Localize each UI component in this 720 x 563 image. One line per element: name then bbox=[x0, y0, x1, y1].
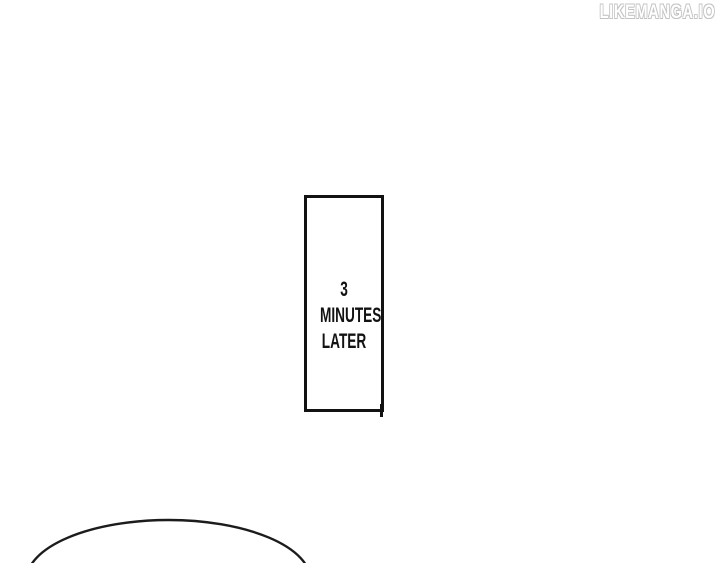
caption-line-3: LATER bbox=[320, 329, 368, 355]
caption-line-1: 3 bbox=[320, 277, 368, 303]
speech-bubble-arc bbox=[27, 520, 311, 563]
caption-line-2: MINUTES bbox=[320, 303, 368, 329]
caption-box-border-overhang bbox=[380, 404, 383, 417]
manga-page: LIKEMANGA.IO 3 MINUTES LATER bbox=[0, 0, 720, 563]
site-watermark: LIKEMANGA.IO bbox=[599, 2, 715, 24]
speech-bubble-outline bbox=[0, 500, 360, 563]
caption-text: 3 MINUTES LATER bbox=[320, 277, 368, 355]
caption-box: 3 MINUTES LATER bbox=[304, 195, 384, 412]
